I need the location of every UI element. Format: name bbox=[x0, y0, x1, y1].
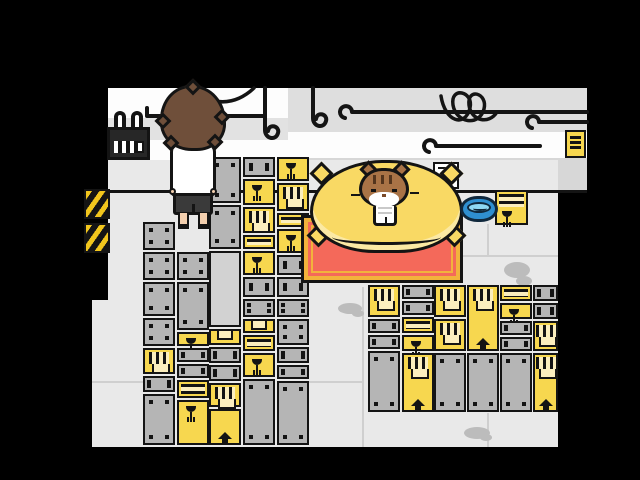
crate-glass bbox=[177, 332, 209, 346]
fragile-glass-icon bbox=[252, 359, 262, 373]
crate-bolts bbox=[500, 353, 532, 412]
crate-vent bbox=[402, 353, 434, 412]
bolt-icon bbox=[183, 320, 187, 324]
crate-bolts bbox=[209, 347, 241, 363]
crate-vent bbox=[368, 285, 400, 317]
bolt-icon bbox=[181, 354, 185, 358]
bolt-icon bbox=[281, 309, 285, 313]
bolt-icon bbox=[406, 291, 410, 295]
bolt-icon bbox=[165, 336, 169, 340]
vent-slats-icon bbox=[374, 289, 394, 301]
crate-stripes bbox=[243, 335, 275, 351]
bolt-icon bbox=[149, 258, 153, 262]
bolt-icon bbox=[456, 359, 460, 363]
bolt-icon bbox=[390, 357, 394, 361]
bolt-icon bbox=[524, 343, 528, 347]
vent-slats-icon bbox=[283, 187, 303, 199]
bolt-icon bbox=[506, 359, 510, 363]
pocket-icon bbox=[251, 321, 267, 330]
vent-slats-icon bbox=[215, 387, 235, 399]
bolt-icon bbox=[165, 240, 169, 244]
cat-nose-icon bbox=[382, 194, 386, 197]
stripes-icon bbox=[247, 339, 271, 347]
crate-glass bbox=[243, 353, 275, 377]
bolt-icon bbox=[201, 354, 205, 358]
bolt-icon bbox=[265, 287, 269, 291]
stripes-top-icon bbox=[499, 194, 524, 207]
bolt-icon bbox=[473, 359, 477, 363]
fragile-glass-icon bbox=[252, 185, 262, 199]
bolt-icon bbox=[392, 341, 396, 345]
bolt-icon bbox=[281, 355, 285, 359]
bolt-icon bbox=[149, 288, 153, 292]
bolt-icon bbox=[301, 303, 305, 307]
bolt-icon bbox=[267, 309, 271, 313]
crate-bolts bbox=[277, 365, 309, 379]
crate-glass bbox=[500, 303, 532, 319]
bolt-icon bbox=[299, 325, 303, 329]
bolt-icon bbox=[249, 167, 253, 171]
bolt-icon bbox=[165, 435, 169, 439]
cat-eye-icon bbox=[392, 189, 397, 192]
bolt-icon bbox=[265, 167, 269, 171]
bolt-icon bbox=[374, 357, 378, 361]
game-viewport bbox=[0, 0, 640, 480]
vent-slats-icon bbox=[536, 357, 556, 369]
cat-forehead-stripes bbox=[373, 175, 395, 184]
bolt-icon bbox=[301, 309, 305, 313]
bolt-icon bbox=[165, 270, 169, 274]
crate-bolts bbox=[209, 365, 241, 381]
crate-bolts bbox=[177, 364, 209, 378]
crate-vent bbox=[277, 183, 309, 211]
bolt-icon bbox=[283, 335, 287, 339]
crate-bolts bbox=[143, 252, 175, 280]
bolt-icon bbox=[181, 370, 185, 374]
crate-bolts bbox=[368, 351, 400, 412]
bolt-icon bbox=[299, 335, 303, 339]
this-way-up-arrow-icon bbox=[539, 399, 553, 406]
vent-slats-icon bbox=[440, 289, 460, 301]
fragile-glass-icon bbox=[252, 257, 262, 271]
bolt-icon bbox=[440, 359, 444, 363]
bolt-icon bbox=[167, 384, 171, 388]
bolt-icon bbox=[231, 211, 235, 215]
cat-whisker-icon bbox=[351, 194, 360, 196]
crate-bolts bbox=[143, 394, 175, 445]
crate-bolts bbox=[143, 376, 175, 392]
cat-body bbox=[373, 206, 397, 226]
bolt-icon bbox=[283, 325, 287, 329]
crate-vent bbox=[533, 321, 558, 351]
bolt-icon bbox=[299, 387, 303, 391]
vent-slats-icon bbox=[408, 357, 428, 369]
stripes-icon bbox=[406, 321, 430, 329]
bolt-icon bbox=[199, 258, 203, 262]
bolt-icon bbox=[374, 402, 378, 406]
crate-vent bbox=[434, 319, 466, 351]
bolt-icon bbox=[489, 402, 493, 406]
crate-glass bbox=[177, 400, 209, 445]
cat-whisker-icon bbox=[410, 192, 419, 194]
bolt-icon bbox=[149, 324, 153, 328]
crate-bolts bbox=[143, 282, 175, 316]
crate bbox=[209, 251, 241, 327]
bolt-icon bbox=[550, 293, 554, 297]
bolt-icon bbox=[183, 258, 187, 262]
crate-bolts bbox=[177, 348, 209, 362]
bolt-icon bbox=[301, 355, 305, 359]
bolt-icon bbox=[165, 288, 169, 292]
crate-bolts bbox=[243, 299, 275, 317]
fragile-glass-icon bbox=[502, 211, 512, 225]
bolt-icon bbox=[283, 387, 287, 391]
bolt-icon bbox=[247, 303, 251, 307]
bolt-icon bbox=[183, 270, 187, 274]
crate-vent bbox=[467, 285, 499, 351]
stripes-icon bbox=[247, 239, 271, 245]
bolt-icon bbox=[199, 320, 203, 324]
fragile-glass-icon bbox=[286, 163, 296, 177]
crate-bolts bbox=[368, 319, 400, 333]
player-leg bbox=[198, 213, 209, 229]
bolt-icon bbox=[299, 287, 303, 291]
bolt-icon bbox=[213, 355, 217, 359]
bowl-wave-icon bbox=[473, 206, 487, 211]
crate-bolts bbox=[402, 301, 434, 315]
bolt-icon bbox=[247, 309, 251, 313]
bolt-icon bbox=[456, 402, 460, 406]
crate-bolts bbox=[533, 303, 558, 319]
bolt-icon bbox=[231, 239, 235, 243]
bolt-icon bbox=[267, 303, 271, 307]
bolt-icon bbox=[165, 400, 169, 404]
cat-muzzle bbox=[369, 192, 399, 207]
bolt-icon bbox=[299, 435, 303, 439]
bolt-icon bbox=[537, 311, 541, 315]
vent-slats-icon bbox=[440, 323, 460, 335]
crate-vent bbox=[434, 285, 466, 317]
crate-bolts bbox=[500, 337, 532, 351]
crate-bolts bbox=[177, 252, 209, 280]
this-way-up-arrow-icon bbox=[476, 338, 490, 345]
bolt-icon bbox=[149, 400, 153, 404]
bolt-icon bbox=[426, 307, 430, 311]
cat[interactable] bbox=[356, 162, 414, 228]
bolt-icon bbox=[281, 371, 285, 375]
crate-bolts bbox=[243, 157, 275, 177]
bolt-icon bbox=[283, 265, 287, 269]
crate-bolts bbox=[500, 321, 532, 335]
bolt-icon bbox=[372, 325, 376, 329]
cat-head bbox=[359, 168, 409, 208]
vent-slats-icon bbox=[249, 211, 269, 223]
crate-stripes-top bbox=[495, 190, 528, 225]
crate-bolts bbox=[243, 379, 275, 445]
bolt-icon bbox=[215, 239, 219, 243]
player-character bbox=[160, 85, 226, 230]
bolt-icon bbox=[199, 270, 203, 274]
crate-bolts bbox=[143, 318, 175, 346]
crate-glass bbox=[243, 251, 275, 275]
crate-stripes bbox=[177, 380, 209, 398]
crate-bolts bbox=[177, 282, 209, 330]
bolt-icon bbox=[233, 355, 237, 359]
bolt-icon bbox=[281, 303, 285, 307]
pocket-icon bbox=[217, 331, 233, 340]
crate-stripes bbox=[402, 317, 434, 333]
bolt-icon bbox=[524, 327, 528, 331]
bolt-icon bbox=[249, 385, 253, 389]
bolt-icon bbox=[183, 288, 187, 292]
crate-bolts bbox=[277, 347, 309, 363]
crate-bolts bbox=[277, 319, 309, 345]
bolt-icon bbox=[372, 341, 376, 345]
player-leg bbox=[178, 213, 189, 229]
crate-vent bbox=[243, 207, 275, 233]
bolt-icon bbox=[265, 435, 269, 439]
bolt-icon bbox=[406, 307, 410, 311]
crate-bolts bbox=[243, 277, 275, 297]
bolt-icon bbox=[249, 287, 253, 291]
bolt-icon bbox=[390, 402, 394, 406]
bolt-icon bbox=[504, 343, 508, 347]
bolt-icon bbox=[265, 385, 269, 389]
fragile-glass-icon bbox=[186, 406, 196, 420]
this-way-up-arrow-icon bbox=[411, 399, 425, 406]
pet-bowl[interactable] bbox=[460, 196, 498, 222]
bolt-icon bbox=[149, 240, 153, 244]
cushion-seam bbox=[332, 229, 441, 245]
stripes-icon bbox=[181, 384, 205, 394]
player-shorts bbox=[173, 193, 213, 215]
bolt-icon bbox=[301, 371, 305, 375]
crate-bolts bbox=[277, 299, 309, 317]
crate-arrow bbox=[209, 409, 241, 445]
bolt-icon bbox=[522, 359, 526, 363]
bolt-icon bbox=[489, 359, 493, 363]
bolt-icon bbox=[201, 370, 205, 374]
bolt-icon bbox=[199, 288, 203, 292]
crate-vent bbox=[533, 353, 558, 412]
bolt-icon bbox=[537, 293, 541, 297]
crate-glass bbox=[402, 335, 434, 351]
bolt-icon bbox=[233, 373, 237, 377]
bolt-icon bbox=[149, 306, 153, 310]
crate-bolts bbox=[434, 353, 466, 412]
bolt-icon bbox=[522, 402, 526, 406]
crate-glass bbox=[243, 179, 275, 205]
bolt-icon bbox=[231, 163, 235, 167]
bolt-icon bbox=[504, 327, 508, 331]
bolt-icon bbox=[165, 306, 169, 310]
bolt-icon bbox=[473, 402, 477, 406]
vent-slats-icon bbox=[536, 325, 556, 337]
this-way-up-arrow-icon bbox=[218, 432, 232, 439]
bolt-icon bbox=[165, 258, 169, 262]
bolt-icon bbox=[506, 402, 510, 406]
bolt-icon bbox=[149, 435, 153, 439]
bolt-icon bbox=[440, 402, 444, 406]
crate-bolts bbox=[368, 335, 400, 349]
bolt-icon bbox=[149, 336, 153, 340]
crate-bolts bbox=[533, 285, 558, 301]
cat-eye-icon bbox=[371, 189, 376, 192]
crate-vent bbox=[143, 348, 175, 374]
bolt-icon bbox=[392, 325, 396, 329]
crate-stripes bbox=[243, 235, 275, 249]
bolt-icon bbox=[249, 435, 253, 439]
bolt-icon bbox=[426, 291, 430, 295]
crate-bolts bbox=[467, 353, 499, 412]
bolt-icon bbox=[283, 435, 287, 439]
bolt-icon bbox=[149, 270, 153, 274]
crate-bolts bbox=[277, 381, 309, 445]
crate-pocket bbox=[243, 319, 275, 333]
bolt-icon bbox=[165, 324, 169, 328]
crate-pocket bbox=[209, 329, 241, 345]
fragile-glass-icon bbox=[286, 235, 296, 249]
vent-slats-icon bbox=[149, 352, 169, 364]
vent-slats-icon bbox=[473, 289, 493, 301]
bolt-icon bbox=[283, 287, 287, 291]
crate-stripes bbox=[500, 285, 532, 301]
bolt-icon bbox=[550, 311, 554, 315]
stripes-icon bbox=[504, 289, 528, 297]
crate-bolts bbox=[402, 285, 434, 299]
bolt-icon bbox=[213, 373, 217, 377]
crate-vent bbox=[209, 383, 241, 407]
bolt-icon bbox=[147, 384, 151, 388]
crate-glass bbox=[277, 157, 309, 181]
bolt-icon bbox=[149, 228, 153, 232]
bolt-icon bbox=[231, 193, 235, 197]
